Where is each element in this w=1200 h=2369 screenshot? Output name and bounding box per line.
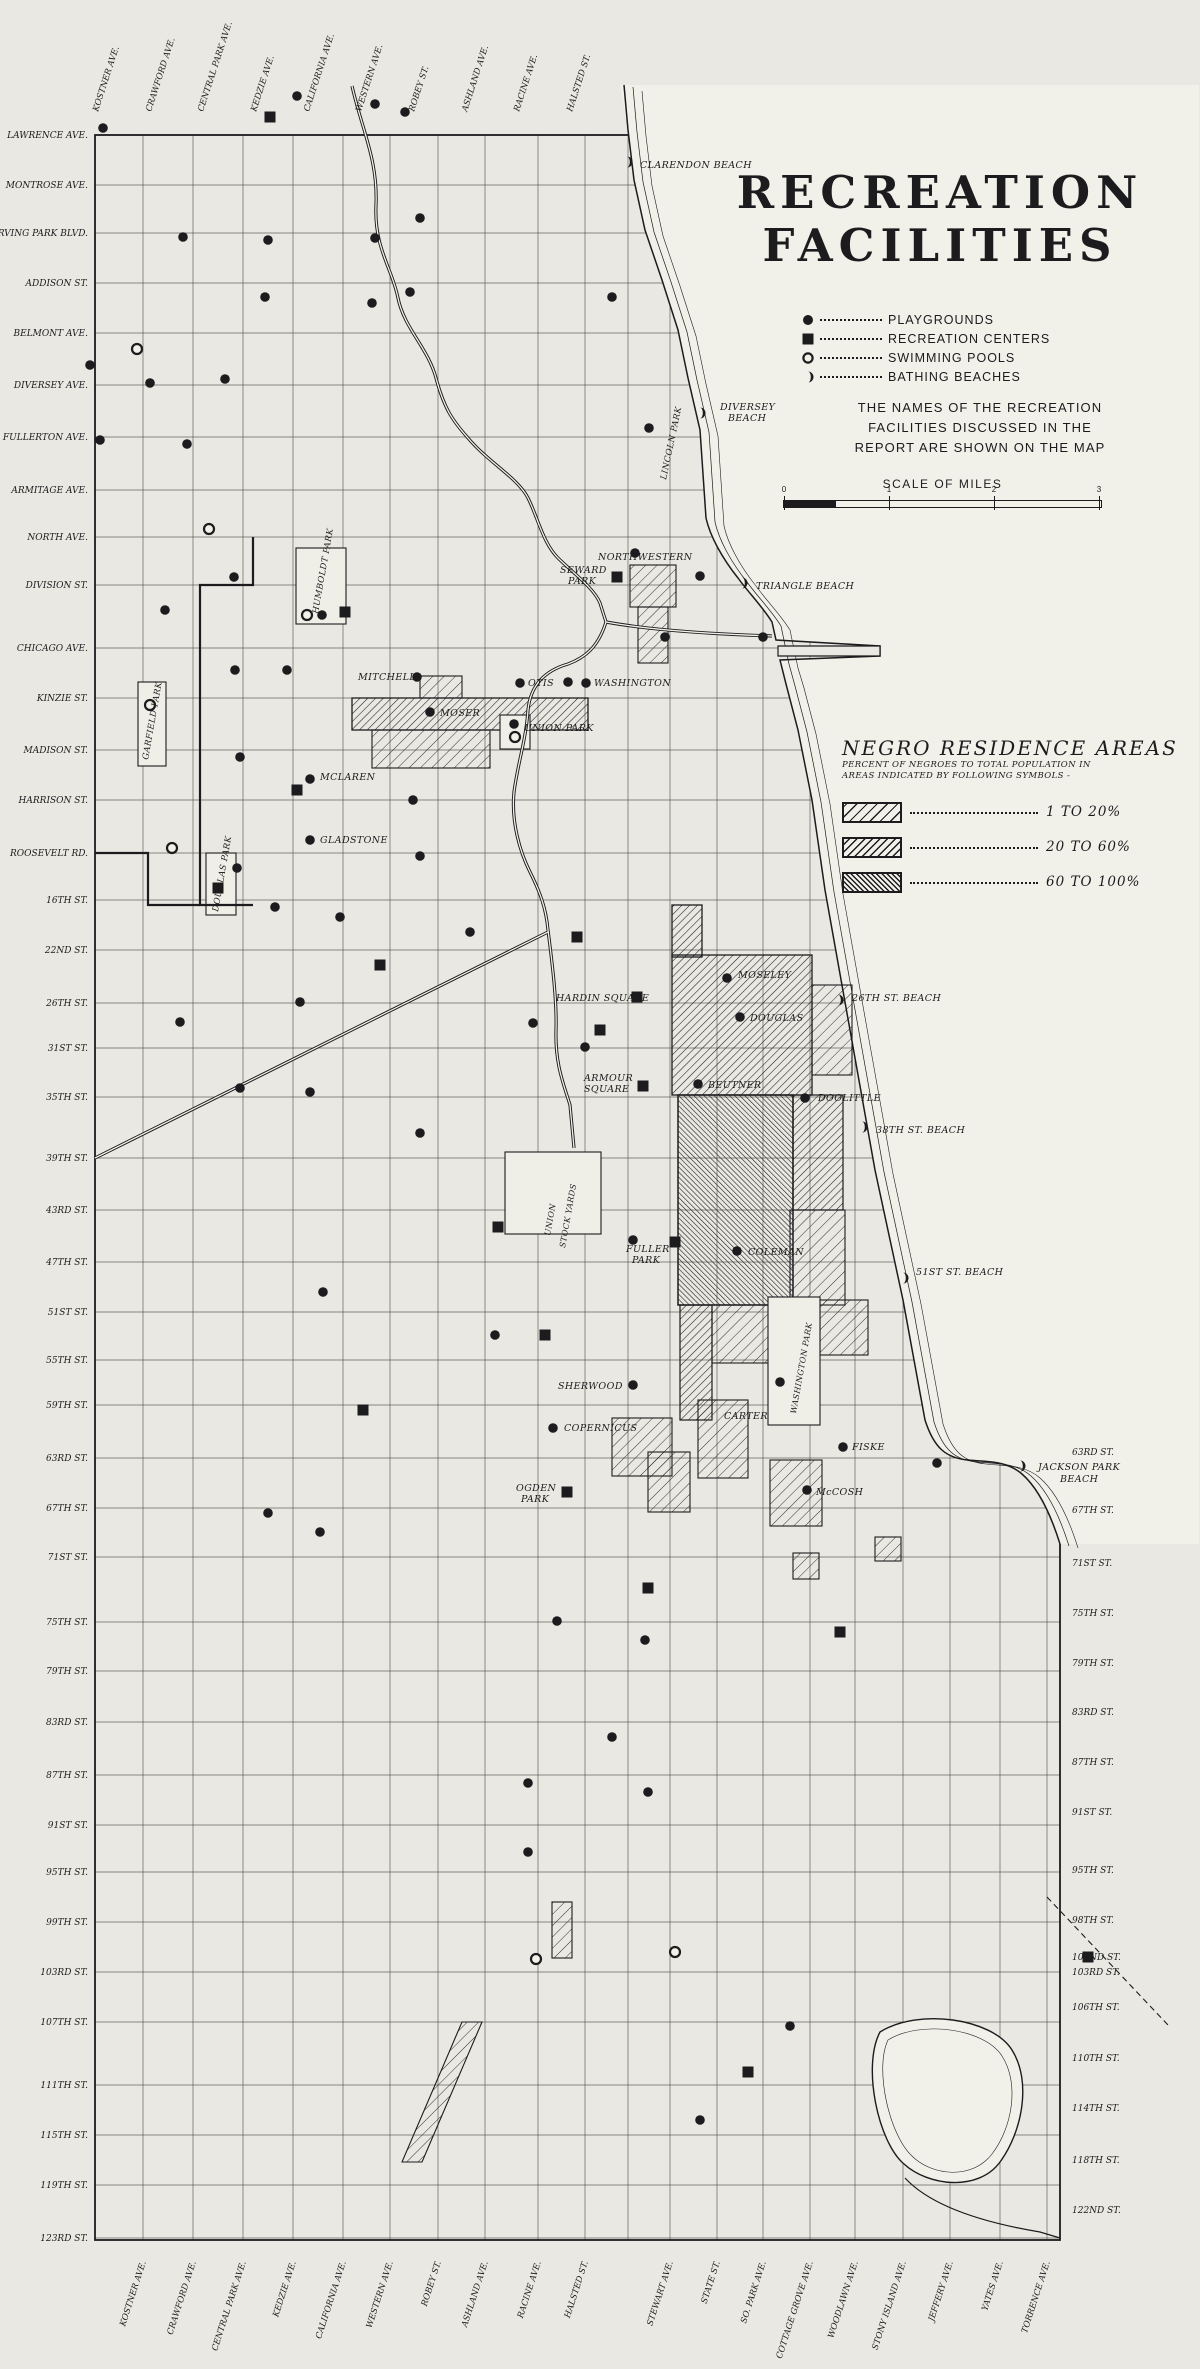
recreation-center-marker: [375, 960, 386, 971]
scale-tick-label: 0: [782, 485, 786, 494]
playground-marker: [490, 1330, 500, 1340]
street-label-left: 123RD ST.: [40, 2234, 88, 2244]
playground-marker: [628, 1380, 638, 1390]
map-label: FULLER: [625, 1244, 670, 1255]
street-label-left: 16TH ST.: [46, 896, 88, 906]
swimming-pool-marker: [204, 524, 214, 534]
street-label-left: 55TH ST.: [46, 1356, 88, 1366]
playground-marker: [932, 1458, 942, 1468]
map-label: PARK: [567, 576, 597, 587]
recreation-center-marker: [340, 607, 351, 618]
map-label: UNION PARK: [524, 723, 594, 734]
playground-marker: [802, 1485, 812, 1495]
scale-bar: 0123: [783, 500, 1102, 508]
street-label-right: 67TH ST.: [1072, 1506, 1114, 1516]
street-label-left: 47TH ST.: [45, 1258, 88, 1268]
street-label-right: 114TH ST.: [1072, 2104, 1120, 2114]
map-label: MCLAREN: [319, 772, 376, 783]
playground-marker: [370, 233, 380, 243]
playground-marker: [415, 1128, 425, 1138]
playground-marker: [98, 123, 108, 133]
map-label: DOUGLAS: [749, 1013, 804, 1024]
playground-marker: [235, 752, 245, 762]
playground-marker: [425, 707, 435, 717]
negro-legend-row: 1 TO 20%: [842, 795, 1182, 830]
playground-marker: [235, 1083, 245, 1093]
dotted-leader: [820, 356, 882, 359]
street-label-right: 118TH ST.: [1072, 2156, 1120, 2166]
negro-residence-legend: NEGRO RESIDENCE AREAS PERCENT OF NEGROES…: [842, 736, 1182, 900]
dotted-leader: [910, 881, 1038, 884]
playground-marker: [735, 1012, 745, 1022]
playground-marker: [318, 1287, 328, 1297]
street-label-left: DIVERSEY AVE.: [13, 381, 88, 391]
playground-marker: [178, 232, 188, 242]
dotted-leader: [820, 375, 882, 378]
street-label-left: 91ST ST.: [48, 1821, 88, 1831]
recreation-center-marker: [743, 2067, 754, 2078]
playground-marker: [260, 292, 270, 302]
swimming-pool-circle-icon: [798, 351, 818, 365]
playground-marker: [515, 678, 525, 688]
swimming-pool-marker: [132, 344, 142, 354]
street-label-left: 99TH ST.: [46, 1918, 88, 1928]
street-label-left: 87TH ST.: [46, 1771, 88, 1781]
scale-tick: [889, 496, 890, 510]
street-label-left: 67TH ST.: [46, 1504, 88, 1514]
map-label: MITCHELL: [357, 672, 416, 683]
playground-marker: [263, 1508, 273, 1518]
title-line-2: FACILITIES: [715, 219, 1165, 272]
map-label: BEACH: [727, 413, 767, 424]
street-label-left: ARMITAGE AVE.: [10, 486, 88, 496]
map-label: TRIANGLE BEACH: [756, 581, 855, 592]
negro-legend-range-label: 1 TO 20%: [1046, 804, 1121, 820]
map-label: CARTER: [724, 1411, 768, 1422]
dotted-leader: [910, 846, 1038, 849]
playground-marker: [528, 1018, 538, 1028]
playground-marker: [563, 677, 573, 687]
street-label-left: 22ND ST.: [44, 946, 88, 956]
playground-marker: [408, 795, 418, 805]
playground-marker: [660, 632, 670, 642]
playground-marker: [800, 1093, 810, 1103]
playground-marker: [229, 572, 239, 582]
negro-area-black-belt: [672, 905, 702, 957]
dotted-leader: [820, 318, 882, 321]
playground-marker: [367, 298, 377, 308]
street-label-left: 71ST ST.: [48, 1553, 88, 1563]
hatch-swatch-dense: [842, 872, 902, 893]
playground-marker: [465, 927, 475, 937]
playground-marker: [270, 902, 280, 912]
playground-marker: [415, 851, 425, 861]
street-label-right: 106TH ST.: [1072, 2003, 1120, 2013]
street-label-left: 95TH ST.: [46, 1868, 88, 1878]
legend-item-label: PLAYGROUNDS: [888, 313, 994, 327]
playground-marker: [523, 1847, 533, 1857]
recreation-center-marker: [612, 572, 623, 583]
playground-marker: [580, 1042, 590, 1052]
street-label-right: 95TH ST.: [1072, 1866, 1114, 1876]
street-label-left: 43RD ST.: [45, 1206, 88, 1216]
playground-marker: [232, 863, 242, 873]
playground-marker: [95, 435, 105, 445]
street-label-left: 31ST ST.: [48, 1044, 88, 1054]
street-label-right: 63RD ST.: [1072, 1448, 1114, 1458]
recreation-center-marker: [562, 1487, 573, 1498]
playground-marker: [775, 1377, 785, 1387]
street-label-right: 98TH ST.: [1072, 1916, 1114, 1926]
scale-of-miles: SCALE OF MILES 0123: [783, 477, 1102, 508]
recreation-center-square-icon: [798, 332, 818, 346]
street-label-left: HARRISON ST.: [18, 796, 89, 806]
map-label: COLEMAN: [748, 1247, 804, 1258]
scale-tick: [994, 496, 995, 510]
negro-legend-title: NEGRO RESIDENCE AREAS: [842, 736, 1182, 760]
scale-title: SCALE OF MILES: [783, 477, 1102, 491]
street-label-left: NORTH AVE.: [26, 533, 88, 543]
street-label-right: 103RD ST.: [1072, 1968, 1120, 1978]
playground-marker: [405, 287, 415, 297]
recreation-center-marker: [265, 112, 276, 123]
playground-marker: [230, 665, 240, 675]
street-label-left: 79TH ST.: [46, 1667, 88, 1677]
scale-tick: [1099, 496, 1100, 510]
street-label-left: 39TH ST.: [46, 1154, 88, 1164]
legend-item-label: SWIMMING POOLS: [888, 351, 1015, 365]
map-label: DOOLITTLE: [817, 1093, 881, 1104]
playground-marker: [785, 2021, 795, 2031]
recreation-center-marker: [358, 1405, 369, 1416]
playground-marker: [292, 91, 302, 101]
map-label: 26TH ST. BEACH: [851, 993, 941, 1004]
legend-item-label: RECREATION CENTERS: [888, 332, 1050, 346]
map-label: ARMOUR: [583, 1073, 633, 1084]
map-label: OGDEN: [516, 1483, 557, 1494]
legend-item: BATHING BEACHES: [798, 367, 1168, 386]
legend-note: THE NAMES OF THE RECREATION FACILITIES D…: [772, 398, 1188, 458]
map-label: PARK: [631, 1255, 661, 1266]
street-label-left: KINZIE ST.: [36, 694, 88, 704]
street-label-left: 63RD ST.: [46, 1454, 88, 1464]
map-label: BEUTNER: [707, 1080, 761, 1091]
map-label: MOSELEY: [737, 970, 793, 981]
playground-marker: [695, 2115, 705, 2125]
scale-tick-label: 3: [1097, 485, 1101, 494]
dotted-leader: [910, 811, 1038, 814]
playground-marker: [509, 719, 519, 729]
playground-marker: [335, 912, 345, 922]
recreation-facilities-map-page: CLARENDON BEACHDIVERSEYBEACHLINCOLN PARK…: [0, 0, 1200, 2369]
street-label-left: CHICAGO AVE.: [17, 644, 88, 654]
map-label: MOSER: [439, 708, 480, 719]
map-label: 38TH ST. BEACH: [876, 1125, 965, 1136]
map-label: DIVERSEY: [719, 402, 777, 413]
street-label-left: MADISON ST.: [23, 746, 89, 756]
playground-marker: [732, 1246, 742, 1256]
playground-marker: [607, 292, 617, 302]
recreation-center-marker: [493, 1222, 504, 1233]
street-label-left: 83RD ST.: [46, 1718, 88, 1728]
map-label: HARDIN SQUARE: [555, 993, 649, 1004]
negro-legend-rows: 1 TO 20%20 TO 60%60 TO 100%: [842, 795, 1182, 900]
playground-marker: [693, 1079, 703, 1089]
playground-marker: [552, 1616, 562, 1626]
street-label-left: ROOSEVELT RD.: [9, 849, 88, 859]
playground-marker: [305, 835, 315, 845]
street-label-right: 110TH ST.: [1072, 2054, 1120, 2064]
playground-marker: [160, 605, 170, 615]
negro-area-near-north: [630, 565, 676, 607]
playground-marker: [305, 1087, 315, 1097]
recreation-center-marker: [638, 1081, 649, 1092]
map-label: FISKE: [851, 1442, 885, 1453]
map-label: COPERNICUS: [564, 1423, 637, 1434]
street-label-left: 103RD ST.: [40, 1968, 88, 1978]
dotted-leader: [820, 337, 882, 340]
playground-marker: [145, 378, 155, 388]
legend-item: PLAYGROUNDS: [798, 310, 1168, 329]
playground-marker: [263, 235, 273, 245]
recreation-center-marker: [835, 1627, 846, 1638]
playground-marker: [643, 1787, 653, 1797]
street-label-left: 35TH ST.: [46, 1093, 88, 1103]
playground-marker: [295, 997, 305, 1007]
map-label: PARK: [520, 1494, 550, 1505]
map-label: 51ST ST. BEACH: [916, 1267, 1004, 1278]
swimming-pool-marker: [531, 1954, 541, 1964]
recreation-center-marker: [595, 1025, 606, 1036]
playground-marker: [175, 1017, 185, 1027]
facility-legend: PLAYGROUNDSRECREATION CENTERSSWIMMING PO…: [798, 310, 1168, 386]
map-label: GLADSTONE: [320, 835, 388, 846]
playground-marker: [220, 374, 230, 384]
street-label-right: 102ND ST.: [1072, 1953, 1121, 1963]
street-label-left: BELMONT AVE.: [13, 329, 89, 339]
street-label-left: LAWRENCE AVE.: [6, 131, 88, 141]
playground-marker: [523, 1778, 533, 1788]
playground-marker: [838, 1442, 848, 1452]
title-line-1: RECREATION: [715, 166, 1165, 219]
street-label-left: MONTROSE AVE.: [5, 181, 88, 191]
street-label-right: 71ST ST.: [1072, 1559, 1112, 1569]
playground-dot-icon: [798, 313, 818, 327]
map-label: McCOSH: [815, 1487, 864, 1498]
street-label-right: 83RD ST.: [1072, 1708, 1114, 1718]
playground-marker: [640, 1635, 650, 1645]
map-label: SQUARE: [584, 1084, 629, 1095]
street-label-left: DIVISION ST.: [25, 581, 89, 591]
street-label-left: IRVING PARK BLVD.: [0, 229, 88, 239]
playground-marker: [644, 423, 654, 433]
legend-item-label: BATHING BEACHES: [888, 370, 1021, 384]
legend-item: RECREATION CENTERS: [798, 329, 1168, 348]
street-label-right: 122ND ST.: [1072, 2206, 1121, 2216]
negro-legend-row: 20 TO 60%: [842, 830, 1182, 865]
scale-tick-label: 2: [992, 485, 996, 494]
scale-bar-fill: [784, 501, 836, 507]
map-label: JACKSON PARK: [1036, 1462, 1121, 1473]
street-label-right: 79TH ST.: [1072, 1659, 1114, 1669]
scale-tick-label: 1: [887, 485, 891, 494]
playground-marker: [182, 439, 192, 449]
playground-marker: [548, 1423, 558, 1433]
playground-marker: [370, 99, 380, 109]
street-label-left: 51ST ST.: [48, 1308, 88, 1318]
map-label: SEWARD: [560, 565, 607, 576]
recreation-center-marker: [643, 1583, 654, 1594]
playground-marker: [581, 678, 591, 688]
swimming-pool-marker: [510, 732, 520, 742]
street-label-right: 75TH ST.: [1072, 1609, 1114, 1619]
map-label: NORTHWESTERN: [597, 552, 693, 563]
recreation-center-marker: [670, 1237, 681, 1248]
recreation-center-marker: [540, 1330, 551, 1341]
street-label-left: 119TH ST.: [40, 2181, 88, 2191]
street-label-left: 111TH ST.: [40, 2081, 88, 2091]
playground-marker: [282, 665, 292, 675]
playground-marker: [722, 973, 732, 983]
playground-marker: [85, 360, 95, 370]
map-label: BEACH: [1059, 1474, 1099, 1485]
street-label-left: 107TH ST.: [40, 2018, 88, 2028]
playground-marker: [758, 632, 768, 642]
playground-marker: [315, 1527, 325, 1537]
map-label: OTIS: [528, 678, 554, 689]
street-label-right: 91ST ST.: [1072, 1808, 1112, 1818]
swimming-pool-marker: [167, 843, 177, 853]
street-label-left: 75TH ST.: [46, 1618, 88, 1628]
street-label-left: FULLERTON AVE.: [2, 433, 88, 443]
scale-tick: [784, 496, 785, 510]
hatch-swatch-medium: [842, 837, 902, 858]
playground-marker: [695, 571, 705, 581]
map-label: WASHINGTON: [594, 678, 671, 689]
swimming-pool-marker: [670, 1947, 680, 1957]
bathing-beach-crescent-icon: [798, 370, 818, 384]
negro-legend-range-label: 60 TO 100%: [1046, 874, 1140, 890]
playground-marker: [607, 1732, 617, 1742]
street-label-left: 59TH ST.: [46, 1401, 88, 1411]
map-title: RECREATION FACILITIES: [715, 166, 1165, 272]
playground-marker: [415, 213, 425, 223]
map-label: SHERWOOD: [558, 1381, 623, 1392]
street-label-left: 26TH ST.: [45, 999, 88, 1009]
hatch-swatch-light: [842, 802, 902, 823]
recreation-center-marker: [292, 785, 303, 796]
negro-legend-row: 60 TO 100%: [842, 865, 1182, 900]
street-label-left: ADDISON ST.: [25, 279, 89, 289]
street-label-left: 115TH ST.: [40, 2131, 88, 2141]
municipal-pier: [778, 646, 880, 656]
playground-marker: [305, 774, 315, 784]
legend-item: SWIMMING POOLS: [798, 348, 1168, 367]
street-label-right: 87TH ST.: [1072, 1758, 1114, 1768]
recreation-center-marker: [572, 932, 583, 943]
negro-legend-range-label: 20 TO 60%: [1046, 839, 1131, 855]
